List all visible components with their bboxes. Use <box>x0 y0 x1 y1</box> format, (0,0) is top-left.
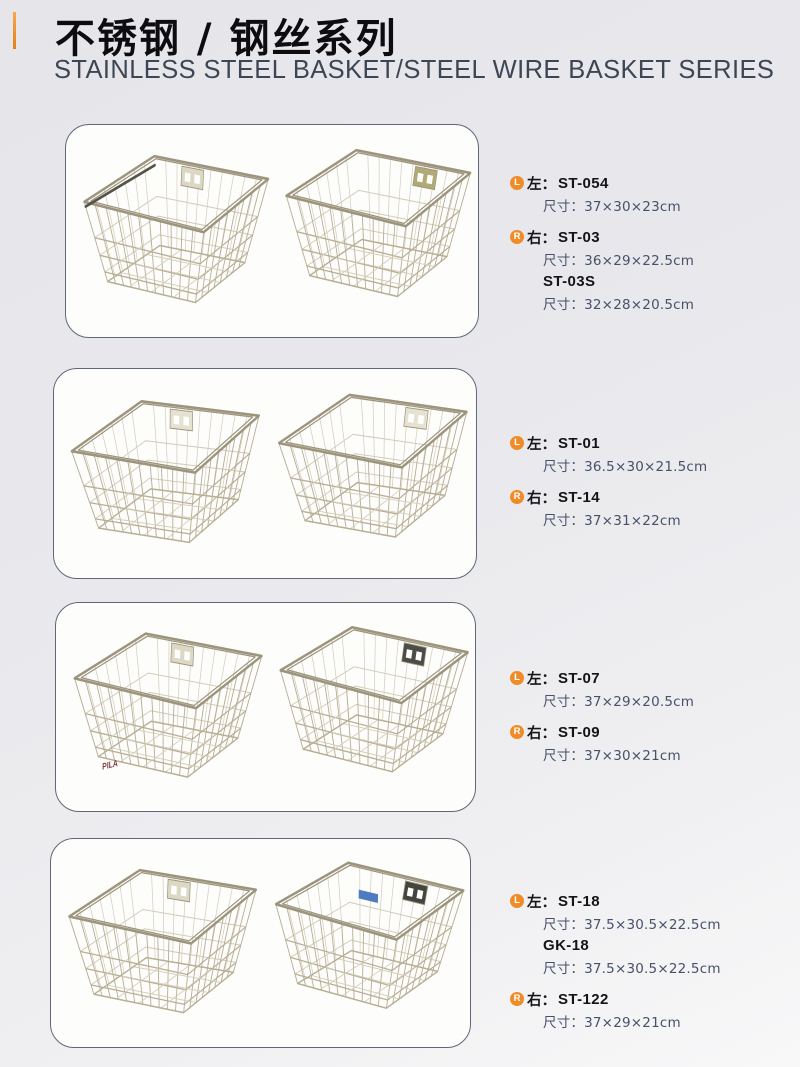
spec-group-right: R 右： ST-09 尺寸：37×30×21cm <box>510 723 796 764</box>
wire-basket-illustration <box>66 125 478 337</box>
spec-group-left: L 左： ST-01 尺寸：36.5×30×21.5cm <box>510 434 796 475</box>
wire-basket-illustration: PILA <box>56 603 475 811</box>
spec-group-right: R 右： ST-14 尺寸：37×31×22cm <box>510 488 796 529</box>
left-badge-icon: L <box>510 176 524 190</box>
left-badge-icon: L <box>510 436 524 450</box>
product-panel <box>53 368 477 579</box>
model-name: ST-07 <box>558 670 600 687</box>
side-label: 左： <box>527 891 556 912</box>
size-text: 尺寸：37×29×20.5cm <box>543 690 796 710</box>
model-name: ST-09 <box>558 724 600 741</box>
spec-block: L 左： ST-18 尺寸：37.5×30.5×22.5cm GK-18 尺寸：… <box>510 892 796 1044</box>
side-label: 右： <box>527 487 556 508</box>
size-text: 尺寸：32×28×20.5cm <box>543 293 796 313</box>
model-name: ST-03 <box>558 229 600 246</box>
size-text: 尺寸：37×31×22cm <box>543 509 796 529</box>
product-panel <box>50 838 471 1048</box>
page-subtitle: STAINLESS STEEL BASKET/STEEL WIRE BASKET… <box>54 56 774 85</box>
side-label: 右： <box>527 722 556 743</box>
model-name: ST-054 <box>558 175 609 192</box>
spec-group-left: L 左： ST-18 尺寸：37.5×30.5×22.5cm GK-18 尺寸：… <box>510 892 796 977</box>
size-text: 尺寸：37×30×23cm <box>543 195 796 215</box>
spec-group-left: L 左： ST-07 尺寸：37×29×20.5cm <box>510 669 796 710</box>
wire-basket-illustration <box>54 369 476 578</box>
spec-group-right: R 右： ST-03 尺寸：36×29×22.5cm ST-03S 尺寸：32×… <box>510 228 796 313</box>
size-text: 尺寸：37×29×21cm <box>543 1011 796 1031</box>
size-text: 尺寸：37.5×30.5×22.5cm <box>543 913 796 933</box>
size-text: 尺寸：37.5×30.5×22.5cm <box>543 957 796 977</box>
product-panel: PILA <box>55 602 476 812</box>
model-name: GK-18 <box>543 937 796 954</box>
wire-basket-illustration <box>51 839 470 1047</box>
side-label: 右： <box>527 989 556 1010</box>
side-label: 左： <box>527 173 556 194</box>
product-panel <box>65 124 479 338</box>
side-label: 左： <box>527 433 556 454</box>
right-badge-icon: R <box>510 725 524 739</box>
right-badge-icon: R <box>510 230 524 244</box>
model-name: ST-122 <box>558 991 609 1008</box>
size-text: 尺寸：36.5×30×21.5cm <box>543 455 796 475</box>
accent-mark <box>13 12 16 49</box>
model-name: ST-01 <box>558 435 600 452</box>
size-text: 尺寸：36×29×22.5cm <box>543 249 796 269</box>
spec-block: L 左： ST-054 尺寸：37×30×23cm R 右： ST-03 尺寸：… <box>510 174 796 326</box>
model-name: ST-14 <box>558 489 600 506</box>
model-name: ST-03S <box>543 273 796 290</box>
spec-block: L 左： ST-07 尺寸：37×29×20.5cm R 右： ST-09 尺寸… <box>510 669 796 777</box>
left-badge-icon: L <box>510 894 524 908</box>
right-badge-icon: R <box>510 992 524 1006</box>
left-badge-icon: L <box>510 671 524 685</box>
size-text: 尺寸：37×30×21cm <box>543 744 796 764</box>
spec-group-left: L 左： ST-054 尺寸：37×30×23cm <box>510 174 796 215</box>
side-label: 左： <box>527 668 556 689</box>
model-name: ST-18 <box>558 893 600 910</box>
svg-text:PILA: PILA <box>101 758 118 772</box>
side-label: 右： <box>527 227 556 248</box>
spec-block: L 左： ST-01 尺寸：36.5×30×21.5cm R 右： ST-14 … <box>510 434 796 542</box>
spec-group-right: R 右： ST-122 尺寸：37×29×21cm <box>510 990 796 1031</box>
right-badge-icon: R <box>510 490 524 504</box>
